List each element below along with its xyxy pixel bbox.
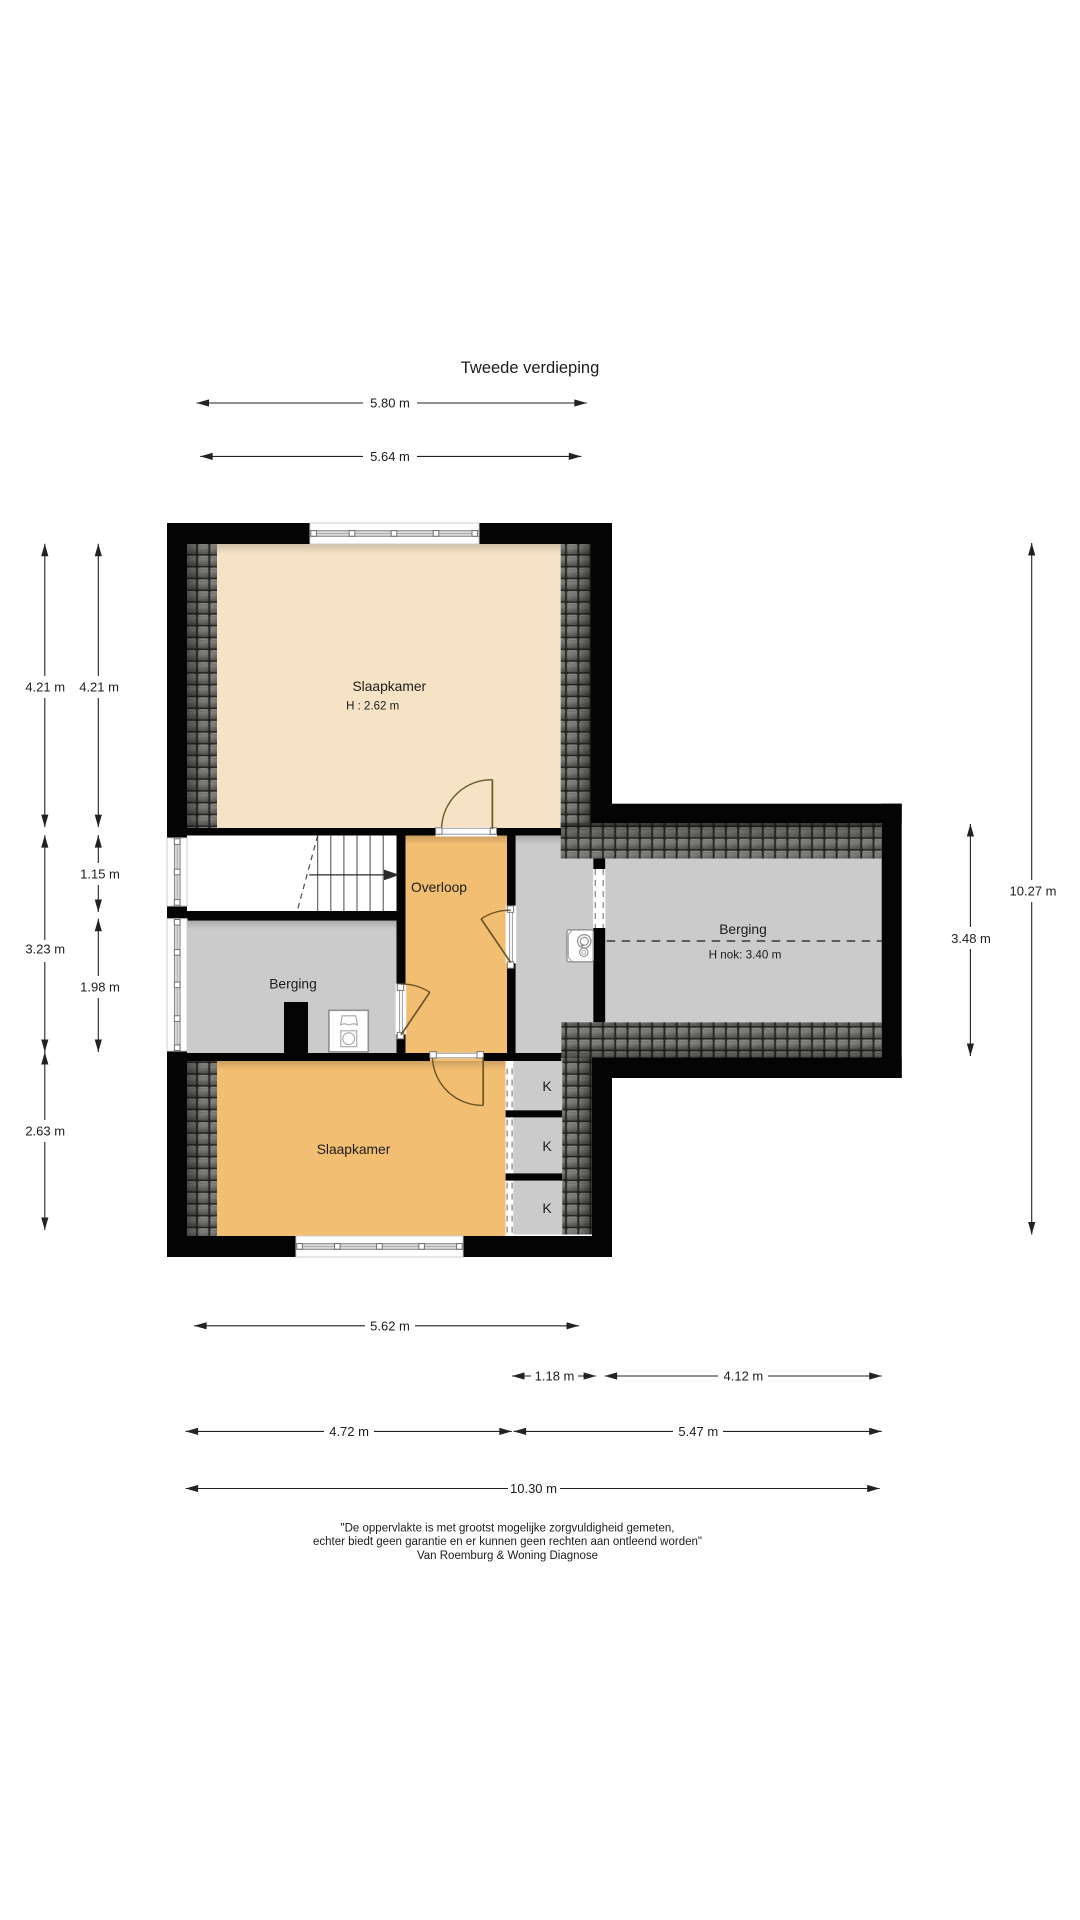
svg-text:H nok: 3.40 m: H nok: 3.40 m bbox=[709, 949, 782, 962]
svg-text:K: K bbox=[542, 1200, 552, 1216]
svg-text:Berging: Berging bbox=[719, 922, 767, 937]
svg-text:5.80 m: 5.80 m bbox=[370, 396, 410, 411]
svg-text:4.72 m: 4.72 m bbox=[329, 1424, 369, 1439]
svg-text:Slaapkamer: Slaapkamer bbox=[352, 679, 426, 694]
svg-text:1.98 m: 1.98 m bbox=[80, 980, 120, 995]
svg-text:"De oppervlakte is met grootst: "De oppervlakte is met grootst mogelijke… bbox=[341, 1523, 675, 1535]
svg-text:10.27 m: 10.27 m bbox=[1010, 884, 1057, 899]
svg-text:H : 2.62 m: H : 2.62 m bbox=[346, 701, 399, 713]
svg-text:5.47 m: 5.47 m bbox=[678, 1424, 718, 1439]
svg-text:4.12 m: 4.12 m bbox=[724, 1369, 764, 1384]
svg-text:4.21 m: 4.21 m bbox=[79, 680, 119, 695]
svg-text:Berging: Berging bbox=[269, 977, 317, 992]
svg-text:echter biedt geen garantie en: echter biedt geen garantie en er kunnen … bbox=[313, 1536, 702, 1548]
svg-text:10.30 m: 10.30 m bbox=[510, 1481, 557, 1496]
svg-text:K: K bbox=[542, 1138, 552, 1154]
svg-text:4.21 m: 4.21 m bbox=[25, 680, 65, 695]
svg-text:Slaapkamer: Slaapkamer bbox=[317, 1142, 391, 1157]
svg-text:5.64 m: 5.64 m bbox=[370, 449, 410, 464]
svg-text:Overloop: Overloop bbox=[411, 880, 467, 895]
svg-text:Tweede verdieping: Tweede verdieping bbox=[461, 359, 600, 377]
svg-text:3.23 m: 3.23 m bbox=[25, 942, 65, 957]
svg-text:3.48 m: 3.48 m bbox=[951, 931, 991, 946]
svg-text:Van Roemburg & Woning Diagnose: Van Roemburg & Woning Diagnose bbox=[417, 1550, 598, 1562]
svg-text:1.18 m: 1.18 m bbox=[535, 1369, 575, 1384]
svg-text:2.63 m: 2.63 m bbox=[25, 1124, 65, 1139]
svg-text:1.15 m: 1.15 m bbox=[80, 867, 120, 882]
svg-text:K: K bbox=[542, 1078, 552, 1094]
svg-text:5.62 m: 5.62 m bbox=[370, 1318, 410, 1333]
